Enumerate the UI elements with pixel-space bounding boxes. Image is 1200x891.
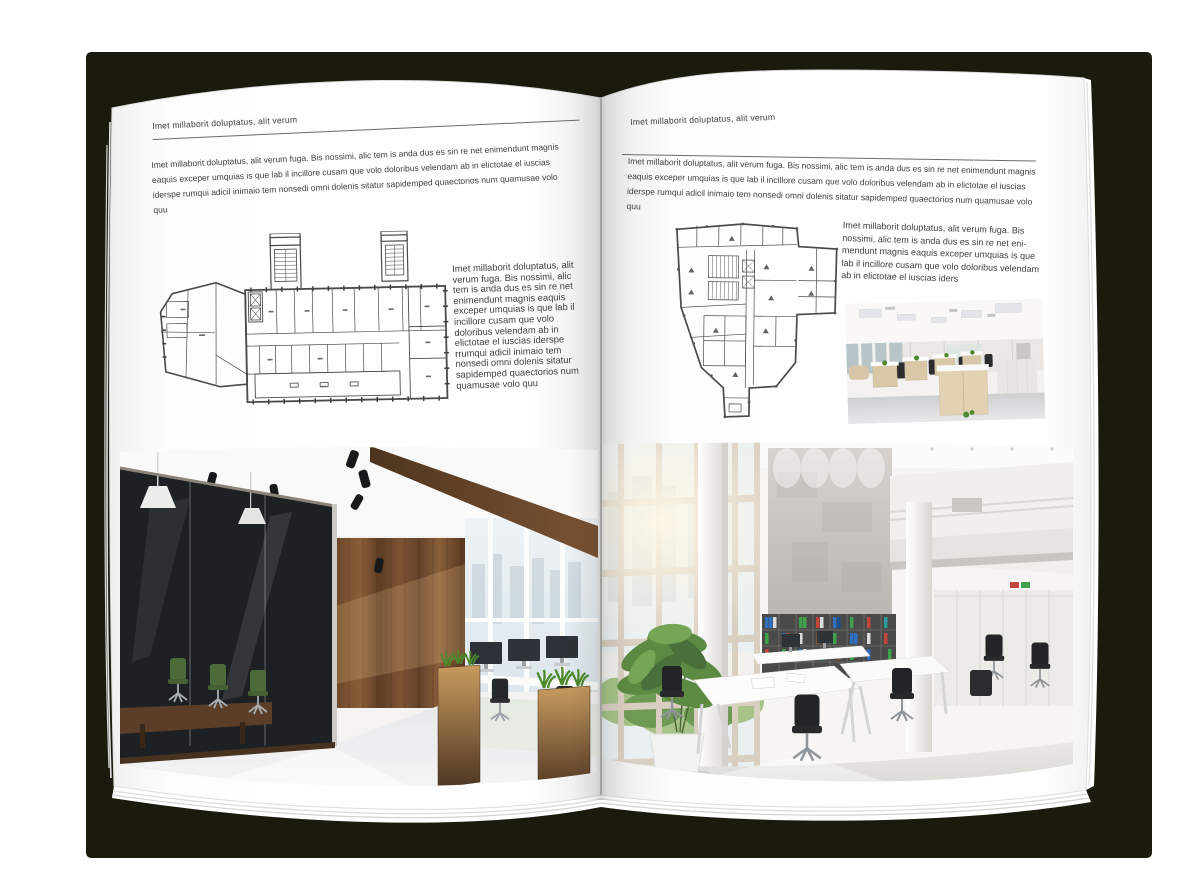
- office-photo-art: [120, 446, 598, 792]
- left-photo-office-interior: [120, 446, 598, 792]
- right-intro-paragraph: Imet millaborit doluptatus, alit verum f…: [626, 154, 1041, 225]
- office-photo-art: [602, 442, 1073, 794]
- right-photo-small-office: [845, 298, 1045, 423]
- right-photo-atrium: [602, 442, 1073, 794]
- left-caption-column: Imet millaborit doluptatus, alit verum f…: [452, 259, 586, 391]
- magazine-spread-mockup: Imet millaborit doluptatus, alit verum I…: [0, 0, 1200, 891]
- left-floor-plan-figure: [157, 230, 453, 416]
- office-photo-art: [845, 298, 1045, 423]
- right-floor-plan-figure: [645, 219, 847, 427]
- floor-plan-drawing: [157, 230, 453, 416]
- right-caption-paragraph: Imet millaborit doluptatus, alit verum f…: [841, 219, 1043, 288]
- floor-plan-drawing: [645, 219, 847, 427]
